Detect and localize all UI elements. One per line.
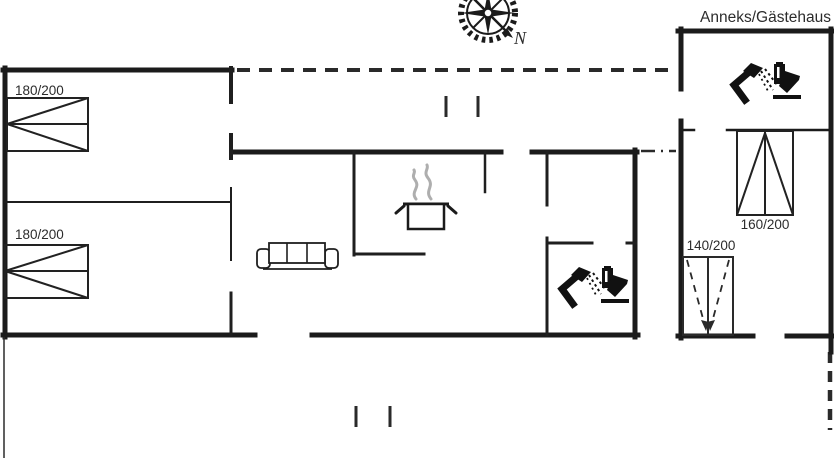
bed-dashed-diagonal <box>711 260 729 326</box>
main-house-interior-walls <box>5 68 636 335</box>
annex-walls <box>678 29 834 352</box>
sofa-icon <box>257 243 338 269</box>
shower-toilet-icon-annex <box>734 62 801 100</box>
pot-handle <box>396 206 404 213</box>
bed-label-master: 180/200 <box>15 83 64 98</box>
compass-hub <box>484 9 492 17</box>
floor-plan: Anneks/Gästehaus N 180/200 180/200 160/2… <box>0 0 834 460</box>
bed-master <box>7 98 88 151</box>
shower-toilet-icon-main <box>562 266 629 304</box>
bed-diagonal <box>5 271 88 298</box>
steam-wisp <box>413 170 416 199</box>
bed-diagonal <box>7 124 88 151</box>
steam-wisp <box>426 165 431 199</box>
bed-diagonal <box>737 133 765 215</box>
bed-annex <box>737 131 793 215</box>
stove-pot-icon <box>396 165 456 229</box>
sofa-armrest <box>325 249 338 268</box>
bed-label-annex-extra: 140/200 <box>687 238 736 253</box>
pot-body <box>408 204 444 229</box>
bed-diagonal <box>765 133 793 215</box>
sofa-armrest <box>257 249 270 268</box>
annex-title: Anneks/Gästehaus <box>700 9 831 26</box>
bed-label-annex: 160/200 <box>741 217 790 232</box>
bed-annex-extra <box>683 257 733 335</box>
bed-label-second: 180/200 <box>15 227 64 242</box>
bed-second <box>5 245 88 298</box>
pot-handle <box>448 206 456 213</box>
compass-rose-icon <box>461 0 515 40</box>
boundary-lines <box>4 70 830 458</box>
bed-dashed-diagonal <box>687 260 705 326</box>
compass-north-label: N <box>513 28 527 48</box>
floor-plan-canvas: Anneks/Gästehaus N 180/200 180/200 160/2… <box>0 0 834 460</box>
bed-diagonal <box>7 98 88 124</box>
bed-diagonal <box>5 245 88 271</box>
sofa-seat <box>269 243 325 263</box>
